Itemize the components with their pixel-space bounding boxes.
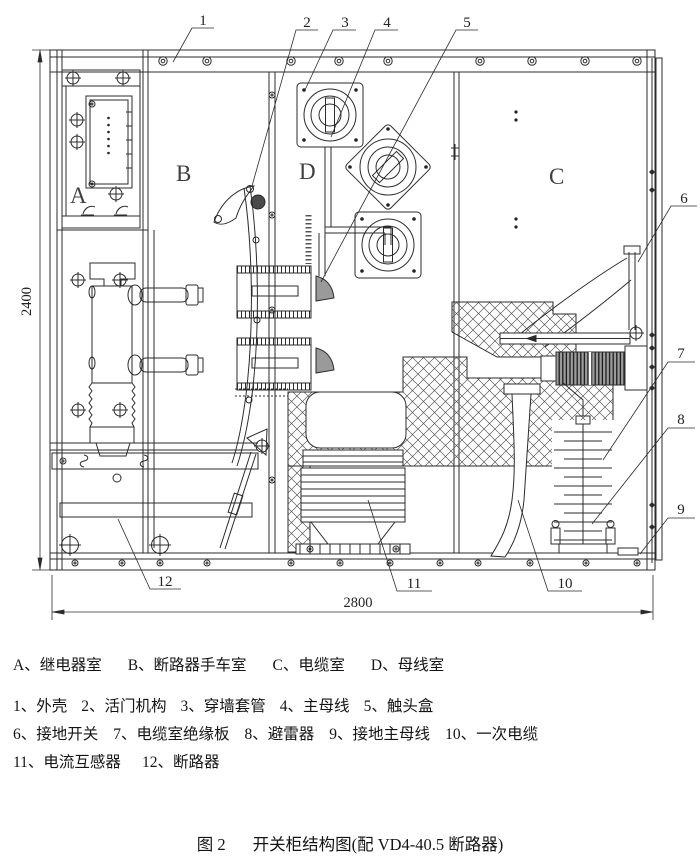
callout-9: 9 xyxy=(677,502,685,518)
bushing-plate-bottom xyxy=(355,212,421,278)
compartment-letters: A B D C xyxy=(70,159,564,208)
callout-3: 3 xyxy=(341,15,349,31)
terminal-dots xyxy=(107,117,110,155)
dim-2400: 2400 xyxy=(19,287,35,316)
compartment-a-label: A xyxy=(70,183,87,208)
figure-number: 图 2 xyxy=(197,831,226,855)
legend-item-6: 6、接地开关 xyxy=(13,722,98,744)
page: A B D C 2400 2800 1 2 3 4 5 6 7 8 xyxy=(0,0,700,864)
legend-room-c: C、电缆室 xyxy=(273,653,345,675)
compartment-b-label: B xyxy=(176,161,191,186)
callout-12: 12 xyxy=(158,574,173,590)
bushing-plate-middle xyxy=(344,123,432,211)
legend-item-1: 1、外壳 xyxy=(13,694,67,716)
legend-room-a: A、继电器室 xyxy=(13,653,102,675)
legend-room-d: D、母线室 xyxy=(371,653,444,675)
breaker-pole-lower xyxy=(128,355,203,375)
legend-room-b: B、断路器手车室 xyxy=(128,653,247,675)
current-transformer xyxy=(296,450,410,554)
bottom-rail-bolts xyxy=(72,560,640,566)
legend-item-7: 7、电缆室绝缘板 xyxy=(113,722,229,744)
callout-1: 1 xyxy=(199,13,207,29)
callouts: 1 2 3 4 5 6 7 8 9 10 11 12 xyxy=(118,13,697,592)
legend-item-4: 4、主母线 xyxy=(280,694,350,716)
legend-compartments: A、继电器室B、断路器手车室C、电缆室D、母线室 xyxy=(13,653,470,675)
legend-item-11: 11、电流互感器 xyxy=(13,750,121,772)
dimension-height: 2400 xyxy=(19,50,57,570)
legend-items-1-5: 1、外壳2、活门机构3、穿墙套管4、主母线5、触头盒 xyxy=(13,694,447,716)
legend-item-10: 10、一次电缆 xyxy=(445,722,538,744)
legend-item-9: 9、接地主母线 xyxy=(329,722,430,744)
cable-hook-icon xyxy=(114,206,128,215)
callout-8: 8 xyxy=(677,412,685,428)
bushing-plate-top xyxy=(297,83,363,147)
legend-item-3: 3、穿墙套管 xyxy=(181,694,266,716)
compartment-c-label: C xyxy=(549,164,564,189)
callout-5: 5 xyxy=(463,15,471,31)
switchgear-structure-drawing: A B D C 2400 2800 1 2 3 4 5 6 7 8 xyxy=(0,0,700,630)
shutter-mechanism xyxy=(214,186,270,550)
callout-10: 10 xyxy=(558,576,573,592)
earth-busbar-fitting xyxy=(618,548,638,555)
breaker-pole-upper xyxy=(128,285,203,305)
contact-box-upper xyxy=(316,276,334,301)
callout-4: 4 xyxy=(383,15,391,31)
callout-7: 7 xyxy=(677,346,685,362)
dim-2800: 2800 xyxy=(344,595,373,611)
legend-items-6-10: 6、接地开关7、电缆室绝缘板8、避雷器9、接地主母线10、一次电缆 xyxy=(13,722,553,744)
drawing-svg: A B D C 2400 2800 1 2 3 4 5 6 7 8 xyxy=(0,0,700,630)
contact-box-lower xyxy=(316,348,334,373)
legend-item-12: 12、断路器 xyxy=(142,750,220,772)
callout-11: 11 xyxy=(407,576,421,592)
callout-2: 2 xyxy=(303,15,311,31)
top-rail-bolts xyxy=(159,57,641,65)
callout-6: 6 xyxy=(680,191,688,207)
legend-items-11-12: 11、电流互感器12、断路器 xyxy=(13,750,240,772)
legend-item-2: 2、活门机构 xyxy=(81,694,166,716)
cable-room-marks xyxy=(514,110,517,228)
compartment-d-label: D xyxy=(299,159,316,184)
figure-title: 开关柜结构图(配 VD4-40.5 断路器) xyxy=(253,831,504,855)
figure-caption: 图 2 开关柜结构图(配 VD4-40.5 断路器) xyxy=(0,831,700,855)
legend-item-8: 8、避雷器 xyxy=(245,722,315,744)
legend-item-5: 5、触头盒 xyxy=(364,694,434,716)
